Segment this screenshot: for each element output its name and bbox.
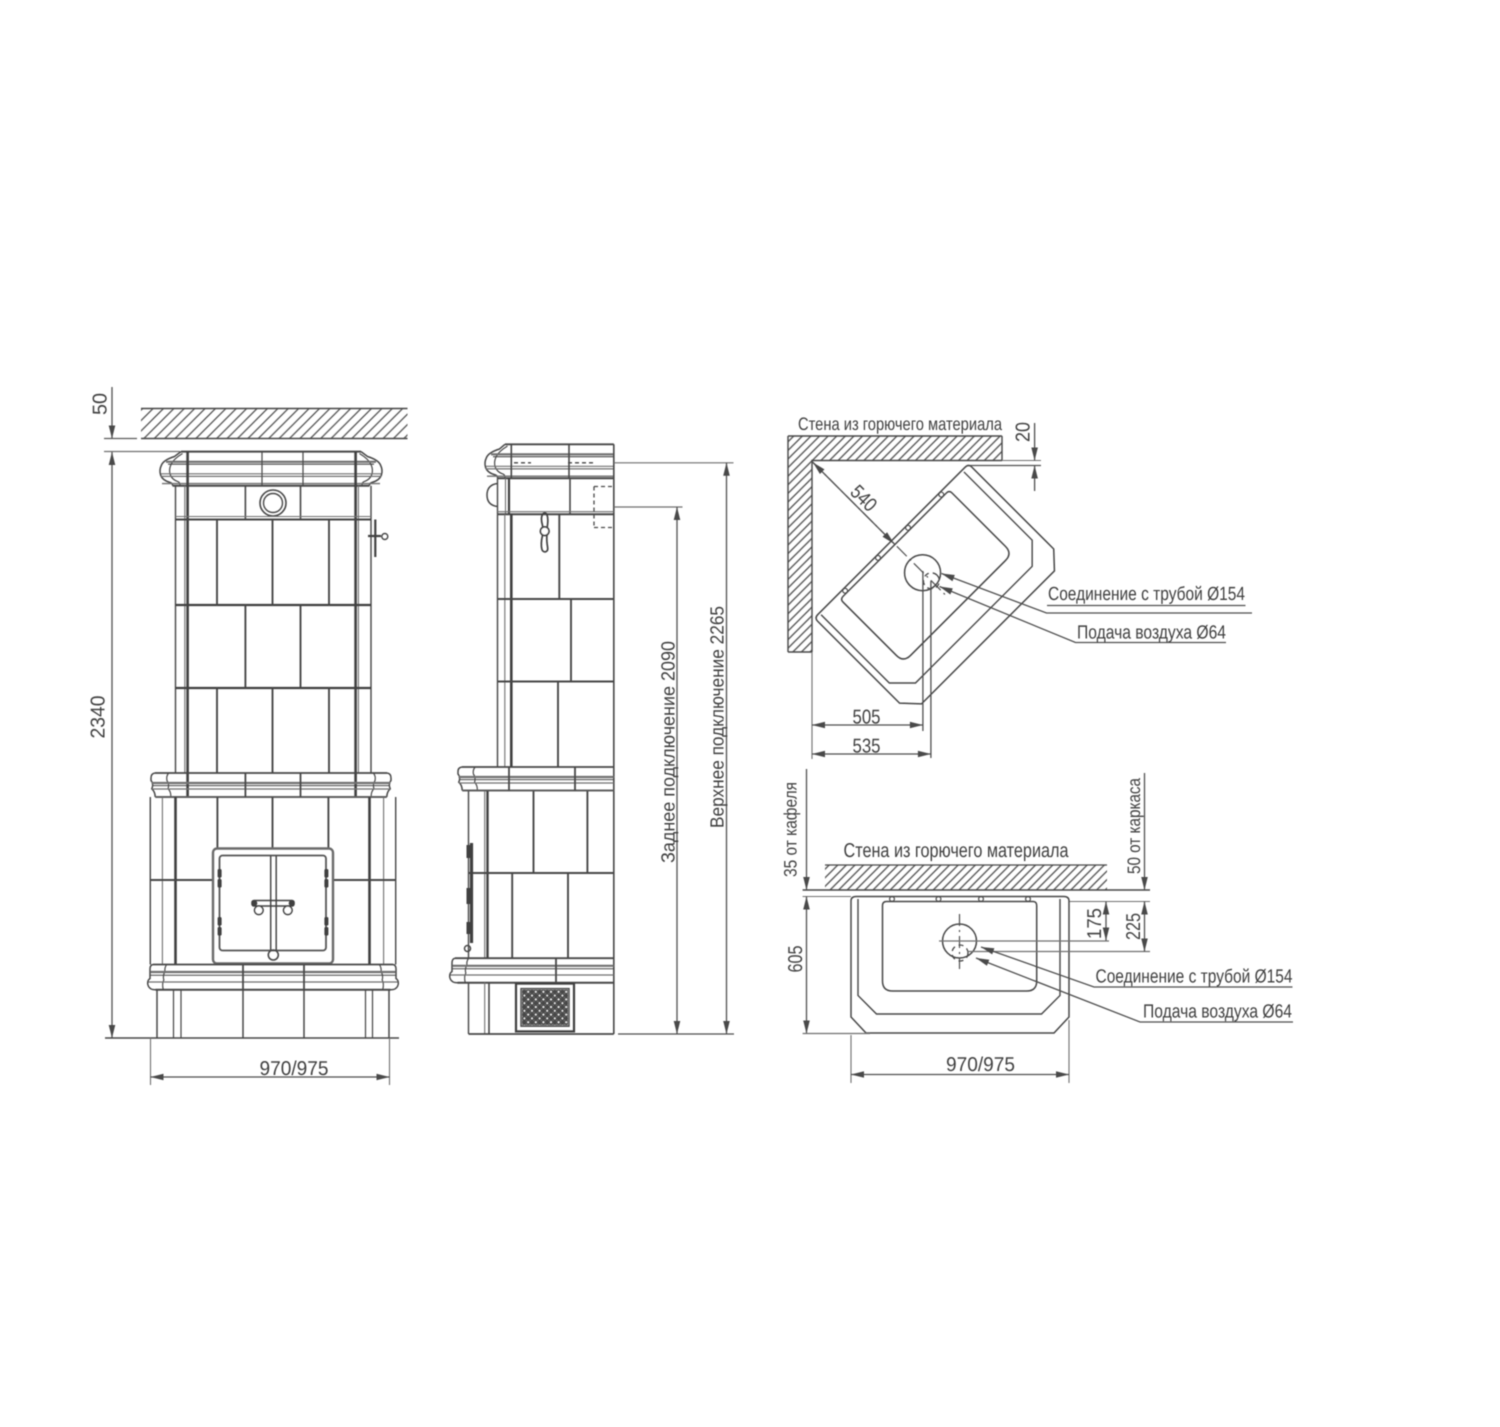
svg-text:50: 50 (90, 393, 112, 415)
svg-text:605: 605 (785, 946, 807, 973)
svg-text:Верхнее подключение 2265: Верхнее подключение 2265 (708, 606, 729, 828)
svg-text:970/975: 970/975 (260, 1058, 329, 1080)
svg-text:Соединение с трубой Ø154: Соединение с трубой Ø154 (1048, 584, 1245, 605)
svg-text:175: 175 (1084, 908, 1106, 939)
svg-text:Стена из горючего материала: Стена из горючего материала (844, 840, 1070, 862)
svg-text:535: 535 (853, 736, 881, 758)
svg-text:Соединение с трубой Ø154: Соединение с трубой Ø154 (1096, 967, 1293, 988)
svg-text:Подача воздуха Ø64: Подача воздуха Ø64 (1077, 623, 1226, 644)
svg-text:505: 505 (853, 707, 881, 729)
svg-text:20: 20 (1013, 422, 1035, 442)
svg-text:50 от каркаса: 50 от каркаса (1124, 777, 1144, 874)
svg-text:970/975: 970/975 (946, 1054, 1015, 1076)
svg-text:Заднее подключение 2090: Заднее подключение 2090 (659, 641, 680, 863)
svg-text:Подача воздуха Ø64: Подача воздуха Ø64 (1143, 1002, 1292, 1023)
svg-text:Стена из горючего материала: Стена из горючего материала (798, 414, 1003, 434)
svg-text:2340: 2340 (88, 696, 110, 739)
svg-text:35 от кафеля: 35 от кафеля (781, 782, 801, 877)
svg-text:225: 225 (1123, 913, 1145, 940)
